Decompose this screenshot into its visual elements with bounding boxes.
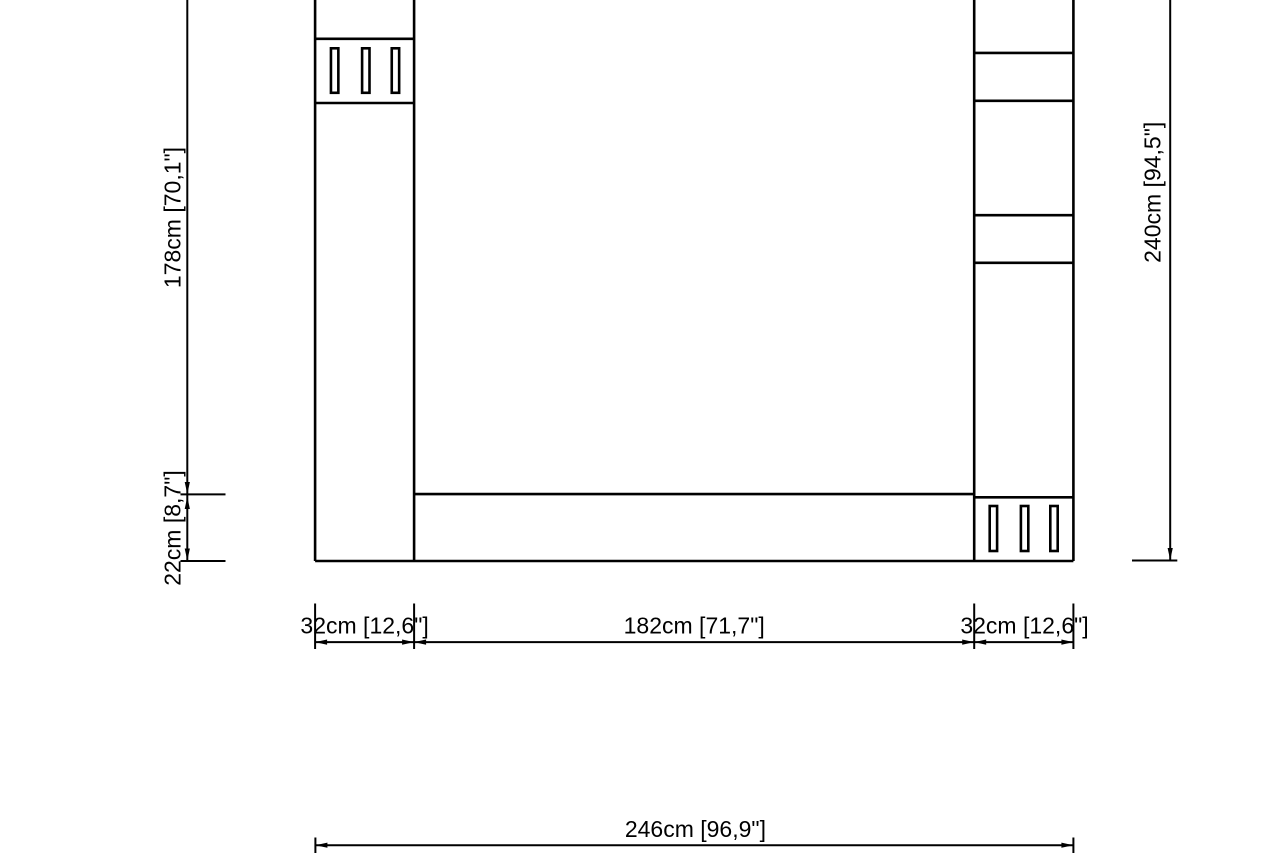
svg-text:22cm [8,7"]: 22cm [8,7"] [160, 470, 186, 586]
svg-text:32cm [12,6"]: 32cm [12,6"] [960, 613, 1088, 639]
svg-text:32cm [12,6"]: 32cm [12,6"] [300, 613, 428, 639]
svg-text:246cm [96,9"]: 246cm [96,9"] [625, 816, 766, 842]
svg-text:182cm [71,7"]: 182cm [71,7"] [624, 613, 765, 639]
svg-text:240cm [94,5"]: 240cm [94,5"] [1140, 122, 1166, 263]
svg-text:178cm [70,1"]: 178cm [70,1"] [160, 147, 186, 288]
